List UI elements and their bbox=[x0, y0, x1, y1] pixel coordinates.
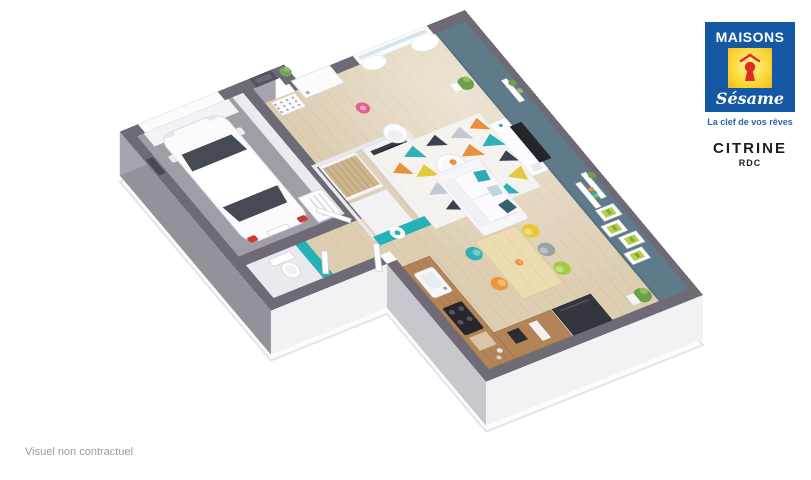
brand-block: MAISONS Sésame La clef de vos rêves CITR… bbox=[691, 22, 809, 168]
brand-tagline: La clef de vos rêves bbox=[691, 117, 809, 127]
brand-word-top: MAISONS bbox=[716, 29, 785, 45]
plan-model-name: CITRINE bbox=[691, 140, 809, 157]
disclaimer: Visuel non contractuel bbox=[25, 446, 133, 458]
plan-title-block: CITRINE RDC bbox=[691, 140, 809, 168]
plan-level: RDC bbox=[691, 158, 809, 168]
keyhole-icon bbox=[737, 53, 763, 83]
brand-word-script: Sésame bbox=[716, 91, 784, 107]
brand-yellow-square bbox=[728, 48, 772, 88]
brand-logo: MAISONS Sésame bbox=[705, 22, 795, 112]
page: MAISONS Sésame La clef de vos rêves CITR… bbox=[0, 0, 811, 480]
